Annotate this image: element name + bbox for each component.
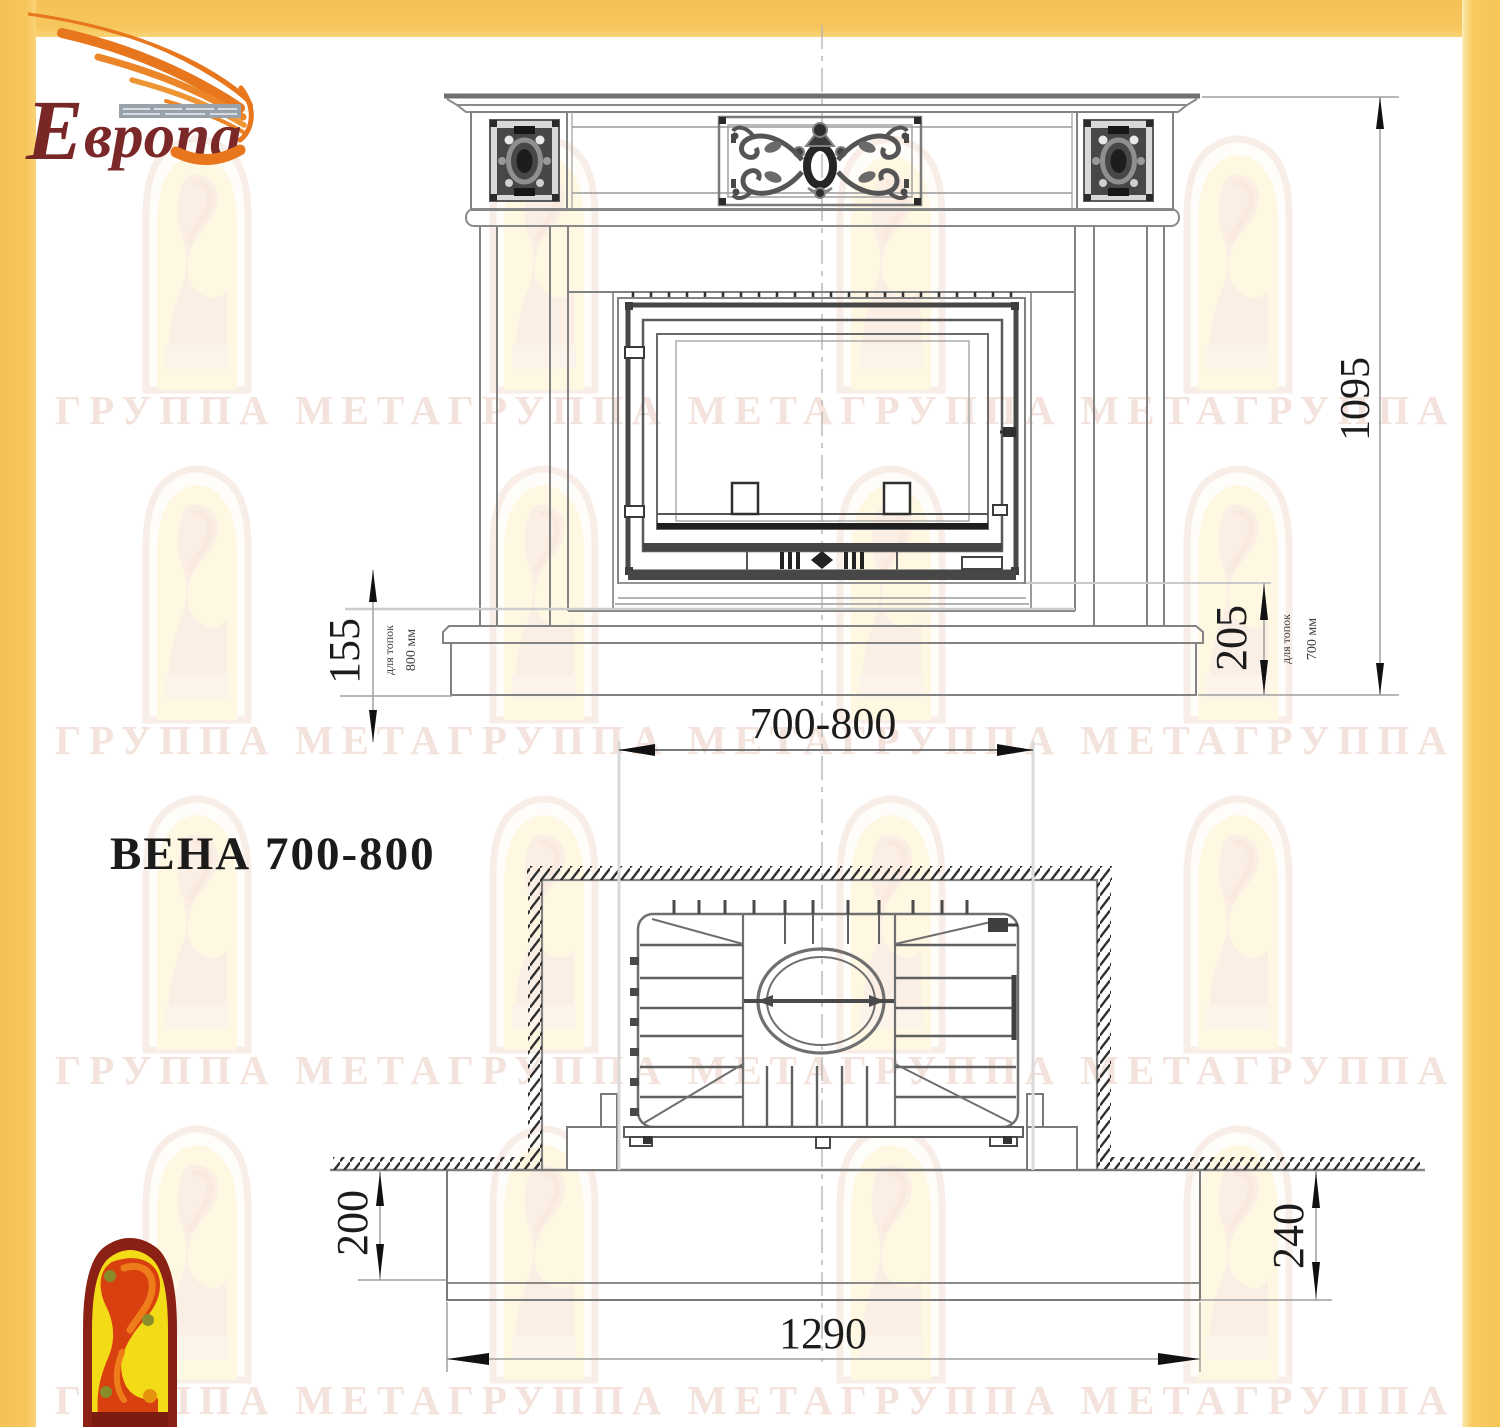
- svg-text:240: 240: [1264, 1203, 1313, 1269]
- svg-text:ГРУППА МЕТАГРУППА МЕТАГРУППА М: ГРУППА МЕТАГРУППА МЕТАГРУППА МЕТАГРУППА: [55, 1377, 1455, 1423]
- svg-text:для топок: для топок: [382, 625, 396, 675]
- svg-text:205: 205: [1207, 605, 1256, 671]
- svg-text:1095: 1095: [1333, 357, 1379, 441]
- svg-text:800 мм: 800 мм: [404, 629, 419, 671]
- svg-text:для топок: для топок: [1279, 614, 1293, 664]
- svg-text:155: 155: [320, 618, 369, 684]
- svg-text:200: 200: [328, 1190, 377, 1256]
- svg-text:ВЕНА 700-800: ВЕНА 700-800: [110, 828, 436, 880]
- svg-text:ГРУППА МЕТАГРУППА МЕТАГРУППА М: ГРУППА МЕТАГРУППА МЕТАГРУППА МЕТАГРУППА: [55, 387, 1455, 433]
- svg-text:700 мм: 700 мм: [1305, 618, 1320, 660]
- svg-text:700-800: 700-800: [750, 699, 897, 748]
- svg-text:1290: 1290: [779, 1309, 867, 1358]
- svg-text:Е: Е: [25, 82, 83, 178]
- svg-text:ГРУППА МЕТАГРУППА МЕТАГРУППА М: ГРУППА МЕТАГРУППА МЕТАГРУППА МЕТАГРУППА: [55, 1047, 1455, 1093]
